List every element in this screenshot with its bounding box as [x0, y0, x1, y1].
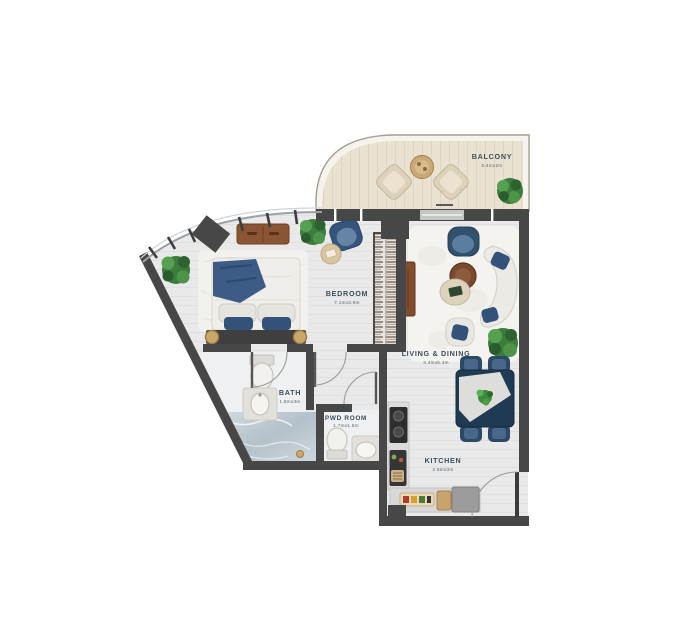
kitchen-tray [400, 493, 434, 506]
bed [206, 258, 307, 344]
wall-notch [388, 505, 406, 518]
lower-left-wall [243, 461, 383, 470]
pwd-sink [352, 436, 380, 462]
kitchen-dimension: 2.9mx3m [433, 467, 454, 472]
pwd-left-wall [316, 404, 324, 464]
pwd-top-wall [316, 404, 352, 412]
bath-dimension: 1.8mx3m [280, 399, 301, 404]
balcony-plant [497, 178, 523, 204]
hall-wall [347, 344, 403, 352]
pwd-room-label: PWD ROOM [325, 415, 367, 422]
kitchen-left-wall [379, 348, 387, 526]
divider-wall [396, 215, 406, 352]
nightstand [294, 331, 307, 344]
bedroom-side-table [321, 244, 341, 264]
living-dining-label: LIVING & DINING [402, 349, 471, 358]
bath-label: BATH [279, 388, 301, 397]
bedroom-plant [162, 256, 191, 284]
living-armchair [448, 227, 479, 256]
bedroom-wall [203, 344, 251, 352]
balcony-label: BALCONY [472, 152, 512, 161]
bath-vanity [243, 388, 277, 420]
kitchen-sink-unit [390, 450, 407, 486]
kitchen-label: KITCHEN [425, 456, 462, 465]
headboard [206, 330, 306, 344]
bath-right-wall [306, 352, 314, 410]
balcony: BALCONY 5.4mx2m [316, 135, 529, 212]
floor-plan-page: BALCONY 5.4mx2m [0, 0, 685, 640]
bedroom-plant [300, 219, 326, 245]
living-plant [488, 328, 518, 358]
nightstand [206, 331, 219, 344]
bath-toilet [250, 355, 274, 389]
ottoman [440, 279, 470, 305]
living-dining-dimension: 3.4mx5.4m [423, 360, 448, 365]
bedroom-dimension: 7.1mx3.8m [334, 300, 359, 305]
right-wall [519, 209, 529, 472]
floor-plan: BALCONY 5.4mx2m [0, 0, 685, 640]
balcony-table [411, 156, 434, 179]
pwd-room-dimension: 1.7mx1.5m [333, 423, 358, 428]
living-small-chair [446, 318, 474, 346]
pwd-toilet [327, 428, 347, 459]
bedroom-label: BEDROOM [326, 289, 368, 298]
balcony-dimension: 5.4mx2m [482, 163, 503, 168]
dresser [237, 224, 289, 244]
cooktop [390, 407, 408, 443]
wardrobe [374, 233, 398, 349]
cutting-board [437, 491, 451, 510]
